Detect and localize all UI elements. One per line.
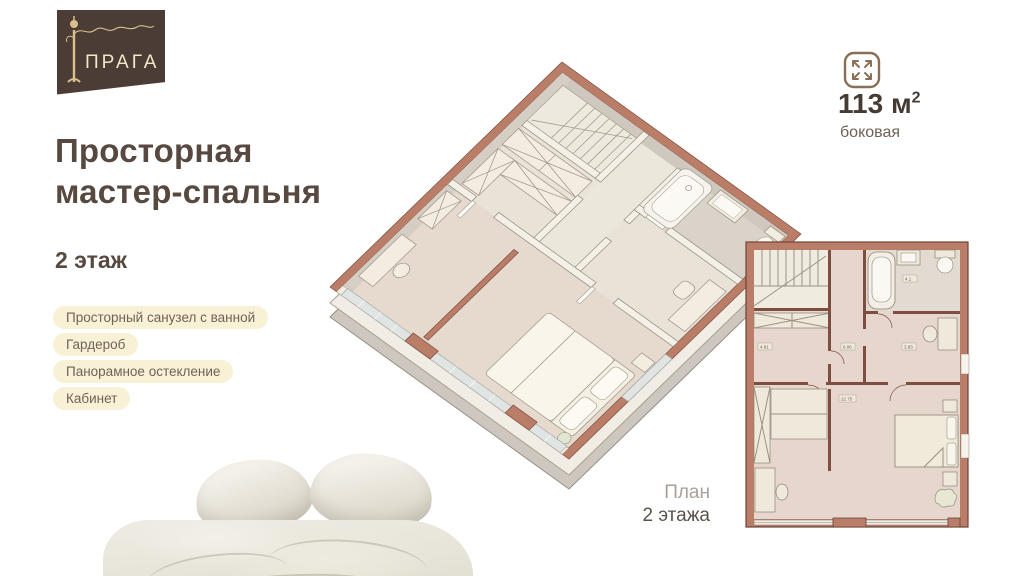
page-title: Просторная мастер-спальня [55,130,321,212]
floorplan-2d: 4.1 3.83 4.81 6.06 [738,234,978,534]
brand-name: ПРАГА [85,52,159,73]
area-unit: м [891,88,912,119]
room-label-wardrobe: 4.81 [760,345,769,350]
area-value: 113 м2 [838,88,921,120]
plan-caption: План 2 этажа [540,481,710,527]
room-label-bedroom: 22.75 [841,397,853,402]
title-line1: Просторная [55,130,321,171]
title-line2: мастер-спальня [55,171,321,212]
plan-bathroom: 4.1 [866,250,960,311]
plan-caption-line2: 2 этажа [540,504,710,527]
brochure-slide: ПРАГА Просторная мастер-спальня 2 этаж П… [0,0,1024,576]
plan-window-slot [961,354,969,374]
bed-photo [118,436,442,576]
room-label-bathroom: 4.1 [905,277,912,282]
area-sup: 2 [912,90,921,107]
feature-list: Просторный санузел с ванной Гардероб Пан… [53,306,268,410]
feature-pill-office: Кабинет [53,387,130,410]
plan-bed [895,415,958,467]
feature-pill-glazing: Панорамное остекление [53,360,233,383]
room-label-hall: 6.06 [843,345,852,350]
room-label-office: 3.83 [904,345,913,350]
plan-window-slot [961,434,969,458]
floor-subtitle: 2 этаж [55,247,127,274]
plan-closet-strip [754,313,830,328]
plan-stairs [754,250,830,310]
plan-nightstand [943,400,957,412]
feature-pill-wardrobe: Гардероб [53,333,138,356]
feature-pill-bathroom: Просторный санузел с ванной [53,306,268,329]
plan-nightstand [943,472,957,486]
area-number: 113 [838,88,883,119]
brand-logo: ПРАГА [57,10,165,98]
plan-caption-line1: План [540,481,710,504]
expand-icon [842,50,882,90]
area-type-label: боковая [840,124,900,142]
